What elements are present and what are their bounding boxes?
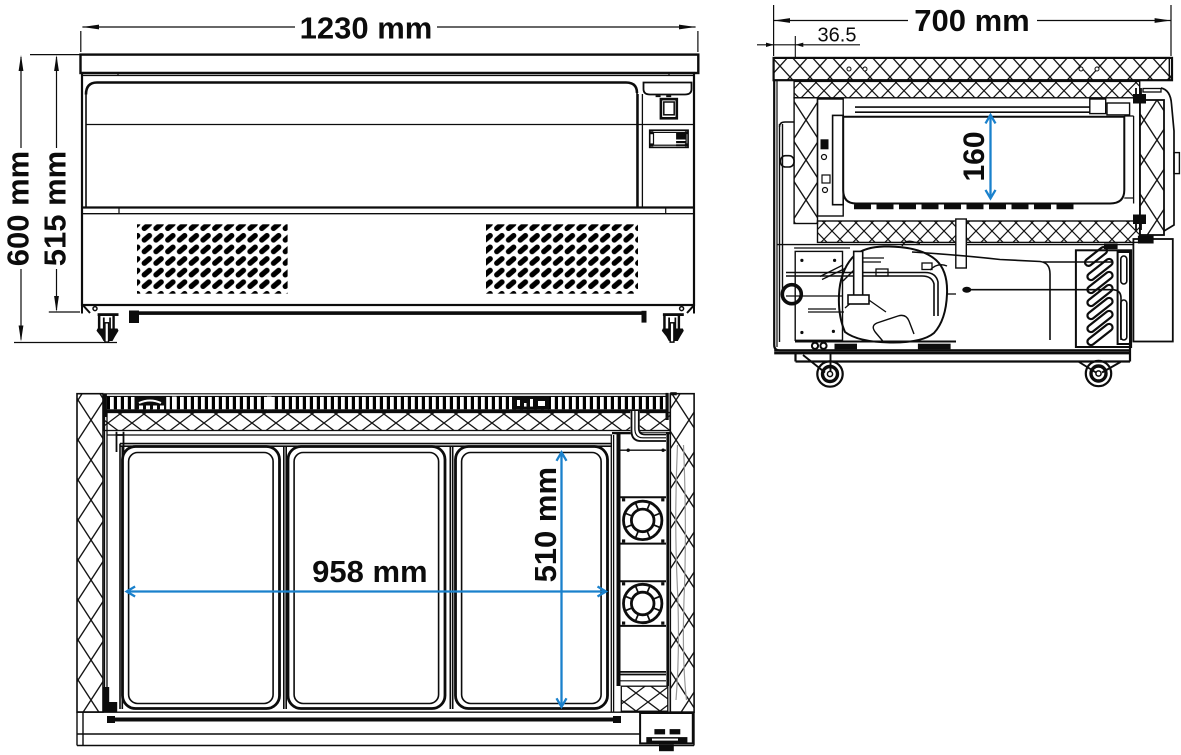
svg-text:958 mm: 958 mm <box>312 554 427 589</box>
svg-text:600 mm: 600 mm <box>1 151 36 266</box>
svg-text:700 mm: 700 mm <box>914 3 1029 38</box>
svg-text:36.5: 36.5 <box>818 25 857 47</box>
svg-text:515 mm: 515 mm <box>38 151 73 266</box>
svg-text:160: 160 <box>958 131 991 181</box>
svg-text:1230 mm: 1230 mm <box>300 11 433 46</box>
svg-text:510 mm: 510 mm <box>528 467 563 582</box>
